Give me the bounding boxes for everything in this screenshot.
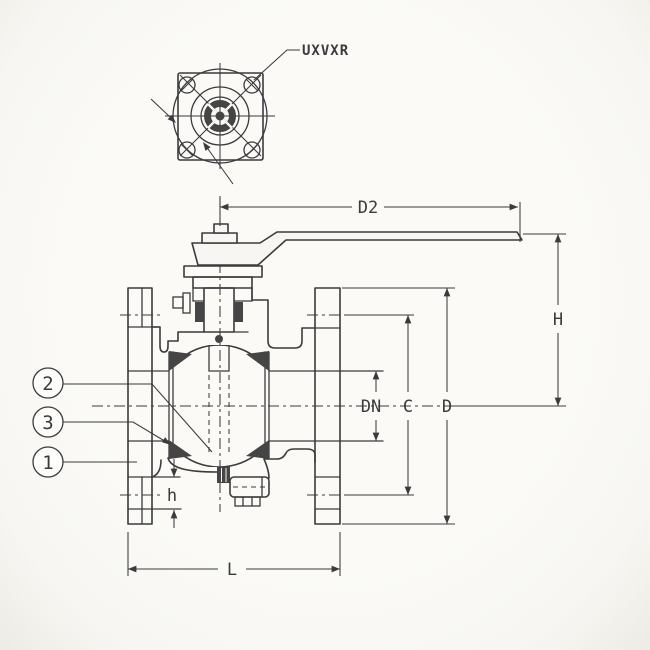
gland-packing <box>234 302 243 322</box>
top-view-mounting-pad: UXVXR <box>151 43 349 184</box>
dim-label-H: H <box>553 310 563 330</box>
bonnet-and-gland <box>173 266 262 332</box>
dim-label-D2: D2 <box>358 198 378 218</box>
bottom-trunnion <box>217 467 230 483</box>
dimensions: D2 H D C DN <box>128 198 566 580</box>
balloon-3-number: 3 <box>42 412 53 434</box>
dimension-h: h <box>167 459 177 528</box>
handle-lever <box>192 232 522 265</box>
dim-label-L: L <box>227 560 237 580</box>
stem-cap <box>214 224 228 233</box>
ball-and-seats <box>158 335 280 467</box>
drawing-page: UXVXR <box>0 0 650 650</box>
seat-ring <box>169 440 192 459</box>
mounting-plate <box>184 266 262 277</box>
balloon-callouts: 2 3 1 <box>33 368 212 477</box>
drain-plug <box>217 467 269 506</box>
dimension-DN: DN <box>361 371 381 441</box>
seat-ring <box>246 351 269 371</box>
ball-valve-technical-drawing: UXVXR <box>0 0 650 650</box>
bonnet-column <box>204 288 234 332</box>
lever-handle <box>192 224 522 265</box>
dim-label-DN: DN <box>361 397 381 417</box>
dim-label-h: h <box>167 486 177 506</box>
front-section-view <box>92 196 522 524</box>
balloon-2-number: 2 <box>42 373 53 395</box>
dimension-L: L <box>128 532 340 580</box>
dim-label-D: D <box>442 397 452 417</box>
stem-nut <box>202 233 237 243</box>
gland-packing <box>195 302 204 322</box>
stop-tab <box>173 297 183 308</box>
balloon-1: 1 <box>33 447 137 477</box>
balloon-2-leader <box>63 384 212 452</box>
seat-ring <box>169 351 192 371</box>
plug-hex <box>235 497 260 506</box>
stem-center-dot <box>216 112 225 121</box>
dim-label-C: C <box>403 397 413 417</box>
mounting-pad-label: UXVXR <box>302 43 349 59</box>
dimension-H: H <box>446 234 566 406</box>
balloon-1-number: 1 <box>42 452 53 474</box>
balloon-2: 2 <box>33 368 212 452</box>
balloon-3: 3 <box>33 407 171 445</box>
mounting-pad-callout: UXVXR <box>254 43 349 80</box>
seat-ring <box>246 440 269 459</box>
stem-tip <box>215 335 223 343</box>
ball-stem-slot <box>209 347 229 371</box>
